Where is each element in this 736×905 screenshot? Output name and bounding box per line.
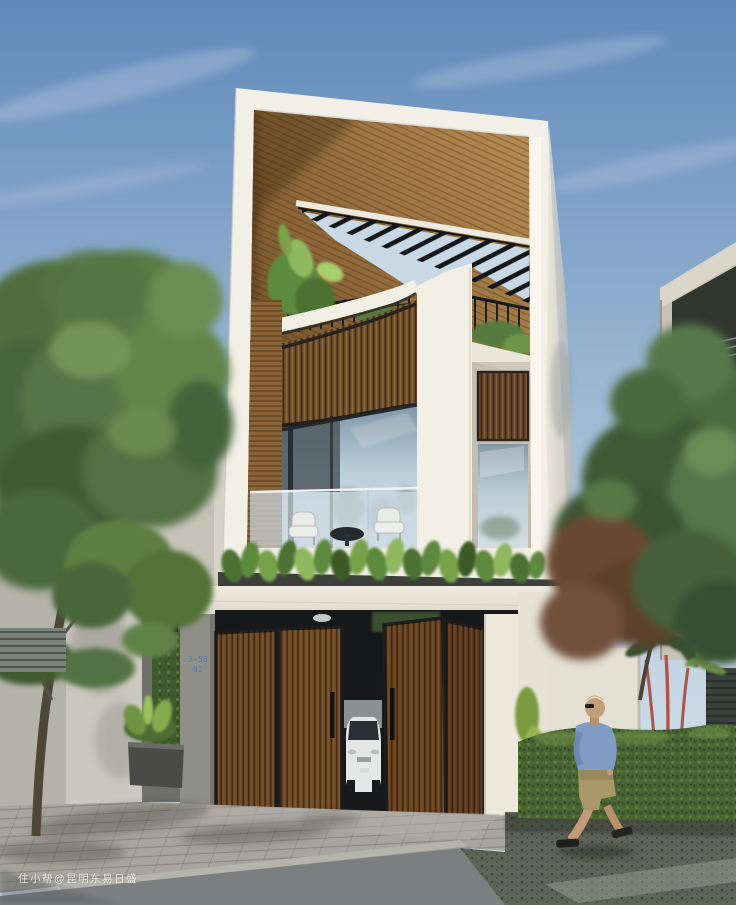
garage-pillar-right bbox=[484, 614, 518, 816]
gate-handle-right bbox=[390, 688, 395, 740]
ceiling-light bbox=[313, 614, 331, 622]
car-windshield bbox=[348, 721, 379, 740]
pedestrian-shadow bbox=[559, 846, 633, 859]
white-column bbox=[417, 263, 472, 562]
address-pillar bbox=[180, 614, 215, 812]
sunglasses bbox=[585, 704, 594, 708]
scene-illustration: 3-50 62 bbox=[0, 0, 736, 905]
gate-handle-left bbox=[330, 692, 335, 738]
right-recess bbox=[472, 342, 531, 562]
front-shoe bbox=[556, 838, 580, 848]
car bbox=[344, 700, 382, 793]
architectural-render: 3-50 62 bbox=[0, 0, 736, 905]
